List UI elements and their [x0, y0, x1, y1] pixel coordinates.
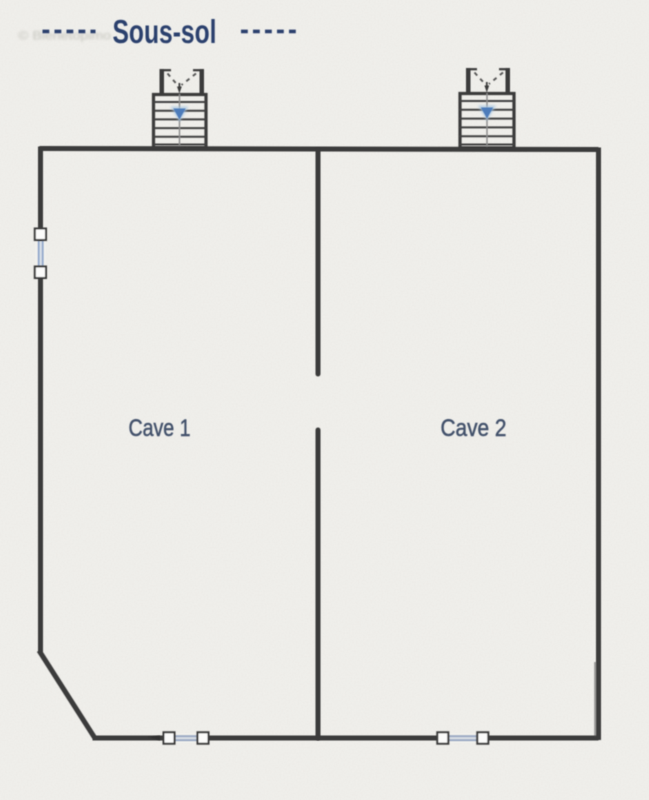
svg-text:© Bienetopimo: © Bienetopimo	[18, 31, 111, 43]
svg-text:Sous-sol: Sous-sol	[113, 13, 217, 50]
svg-text:Cave 2: Cave 2	[441, 415, 507, 442]
svg-text:Cave 1: Cave 1	[129, 415, 191, 442]
